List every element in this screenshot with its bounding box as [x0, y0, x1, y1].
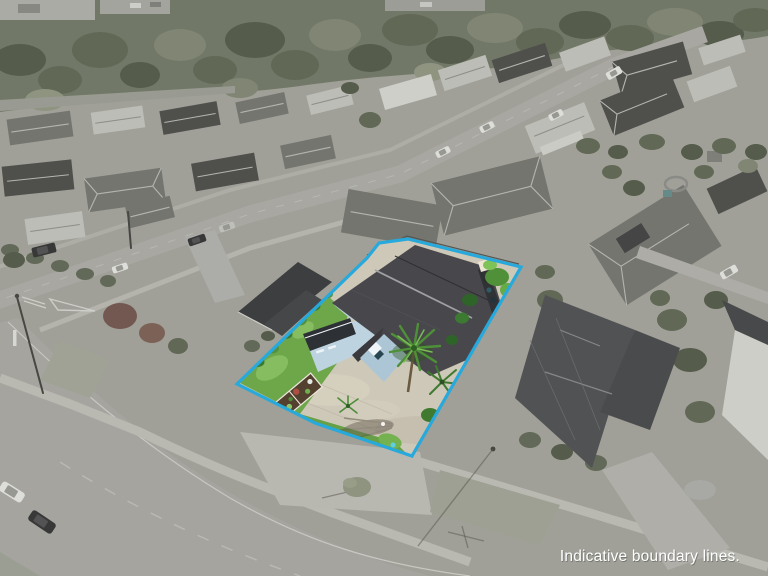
aerial-photo: Indicative boundary lines. Indicative bo… — [0, 0, 768, 576]
aqua-object — [391, 443, 396, 448]
caption-text: Indicative boundary lines. — [560, 548, 740, 565]
caption: Indicative boundary lines. Indicative bo… — [560, 548, 741, 566]
dog — [381, 422, 385, 426]
aerial-photo-canvas: Indicative boundary lines. Indicative bo… — [0, 0, 768, 576]
